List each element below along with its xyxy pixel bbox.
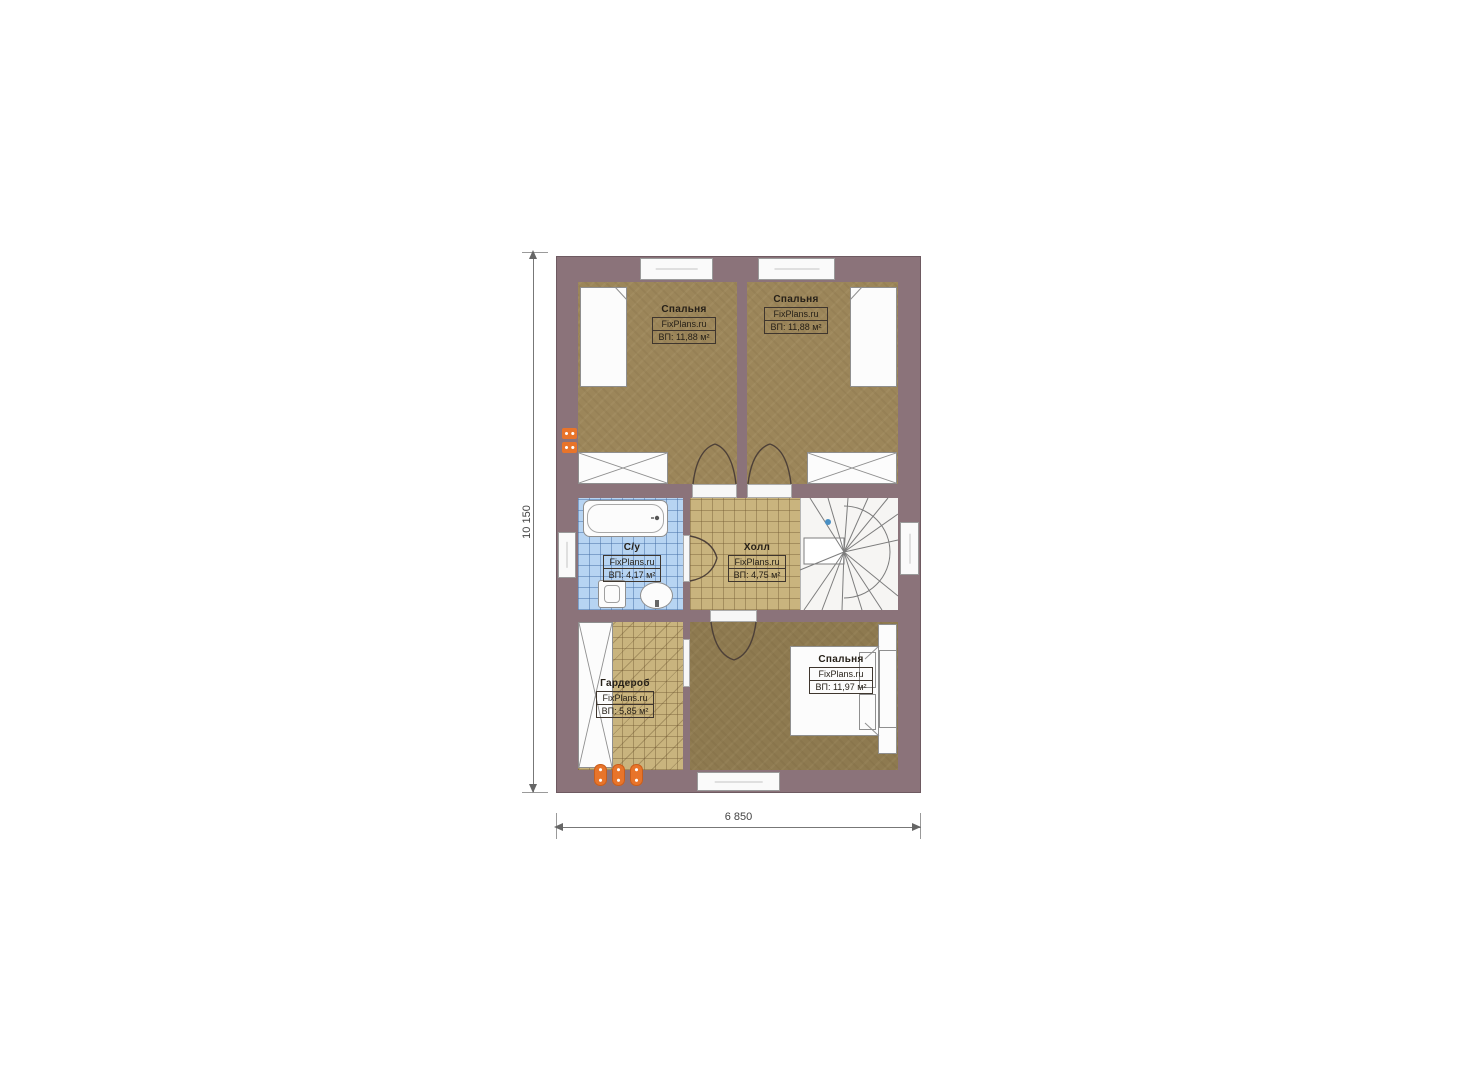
window-left-bathroom <box>558 532 576 578</box>
bed-single-left <box>580 287 627 387</box>
room-info-box: FixPlans.ru ВП: 5,85 м² <box>596 691 655 718</box>
floor-plan: Спальня FixPlans.ru ВП: 11,88 м² Спальня… <box>556 252 921 793</box>
room-info-box: FixPlans.ru ВП: 11,88 м² <box>764 307 827 334</box>
room-area: ВП: 11,88 м² <box>765 321 826 333</box>
dimension-arrow-icon <box>912 823 921 831</box>
dimension-arrow-icon <box>529 250 537 259</box>
sink <box>598 580 626 608</box>
window-top-right <box>758 258 835 280</box>
room-info-box: FixPlans.ru ВП: 11,88 м² <box>652 317 715 344</box>
room-info-box: FixPlans.ru ВП: 4,75 м² <box>728 555 787 582</box>
room-info-box: FixPlans.ru ВП: 11,97 м² <box>809 667 872 694</box>
room-label-hall: Холл FixPlans.ru ВП: 4,75 м² <box>714 542 800 583</box>
brand-label: FixPlans.ru <box>604 556 661 569</box>
wall-mid-upper <box>578 484 898 498</box>
brand-label: FixPlans.ru <box>729 556 786 569</box>
room-label-bedroom-top-left: Спальня FixPlans.ru ВП: 11,88 м² <box>640 304 728 345</box>
outlet-icon <box>594 764 607 786</box>
door-opening-bathroom <box>683 535 690 582</box>
wall-bedroom-divider <box>737 282 747 484</box>
room-name: Спальня <box>797 654 885 665</box>
room-info-box: FixPlans.ru ВП: 4,17 м² <box>603 555 662 582</box>
room-area: ВП: 5,85 м² <box>597 705 654 717</box>
window-top-left <box>640 258 713 280</box>
dimension-arrow-icon <box>554 823 563 831</box>
outlet-icon <box>612 764 625 786</box>
outlet-icon <box>562 442 577 453</box>
window-right-stairs <box>900 522 919 575</box>
dimension-arrow-icon <box>529 784 537 793</box>
dimension-line-vertical <box>533 253 534 792</box>
outlet-icon <box>562 428 577 439</box>
room-name: Спальня <box>752 294 840 305</box>
room-name: С/у <box>589 542 675 553</box>
wall-top <box>556 256 921 282</box>
wardrobe-unit-bedroom-left <box>578 452 668 484</box>
room-label-bedroom-top-right: Спальня FixPlans.ru ВП: 11,88 м² <box>752 294 840 335</box>
room-area: ВП: 4,17 м² <box>604 569 661 581</box>
room-label-bedroom-bottom: Спальня FixPlans.ru ВП: 11,97 м² <box>797 654 885 695</box>
dimension-width-label: 6 850 <box>556 811 921 823</box>
room-area: ВП: 11,97 м² <box>810 681 871 693</box>
floor-plan-canvas: Спальня FixPlans.ru ВП: 11,88 м² Спальня… <box>0 0 1474 1080</box>
brand-label: FixPlans.ru <box>597 692 654 705</box>
pillow-bottom <box>859 694 876 730</box>
room-label-wardrobe: Гардероб FixPlans.ru ВП: 5,85 м² <box>582 678 668 719</box>
room-name: Спальня <box>640 304 728 315</box>
brand-label: FixPlans.ru <box>765 308 826 321</box>
wall-left <box>556 256 578 793</box>
door-opening-bedroom-top-right <box>747 484 792 498</box>
toilet <box>640 582 673 609</box>
brand-label: FixPlans.ru <box>653 318 714 331</box>
room-name: Холл <box>714 542 800 553</box>
nightstand-bottom <box>878 727 897 754</box>
door-opening-wardrobe <box>683 639 690 687</box>
dimension-height-label: 10 150 <box>521 492 533 552</box>
bed-single-right <box>850 287 897 387</box>
outlet-icon <box>630 764 643 786</box>
window-bottom-bedroom <box>697 772 780 791</box>
door-opening-bedroom-bottom <box>710 610 757 622</box>
nightstand-top <box>878 624 897 651</box>
room-area: ВП: 11,88 м² <box>653 331 714 343</box>
brand-label: FixPlans.ru <box>810 668 871 681</box>
room-label-bathroom: С/у FixPlans.ru ВП: 4,17 м² <box>589 542 675 583</box>
wardrobe-unit-bedroom-right <box>807 452 897 484</box>
room-area: ВП: 4,75 м² <box>729 569 786 581</box>
bathtub <box>583 500 668 537</box>
dimension-line-horizontal <box>556 827 921 828</box>
door-opening-bedroom-top-left <box>692 484 737 498</box>
room-floor-stairwell <box>800 498 899 610</box>
room-name: Гардероб <box>582 678 668 689</box>
